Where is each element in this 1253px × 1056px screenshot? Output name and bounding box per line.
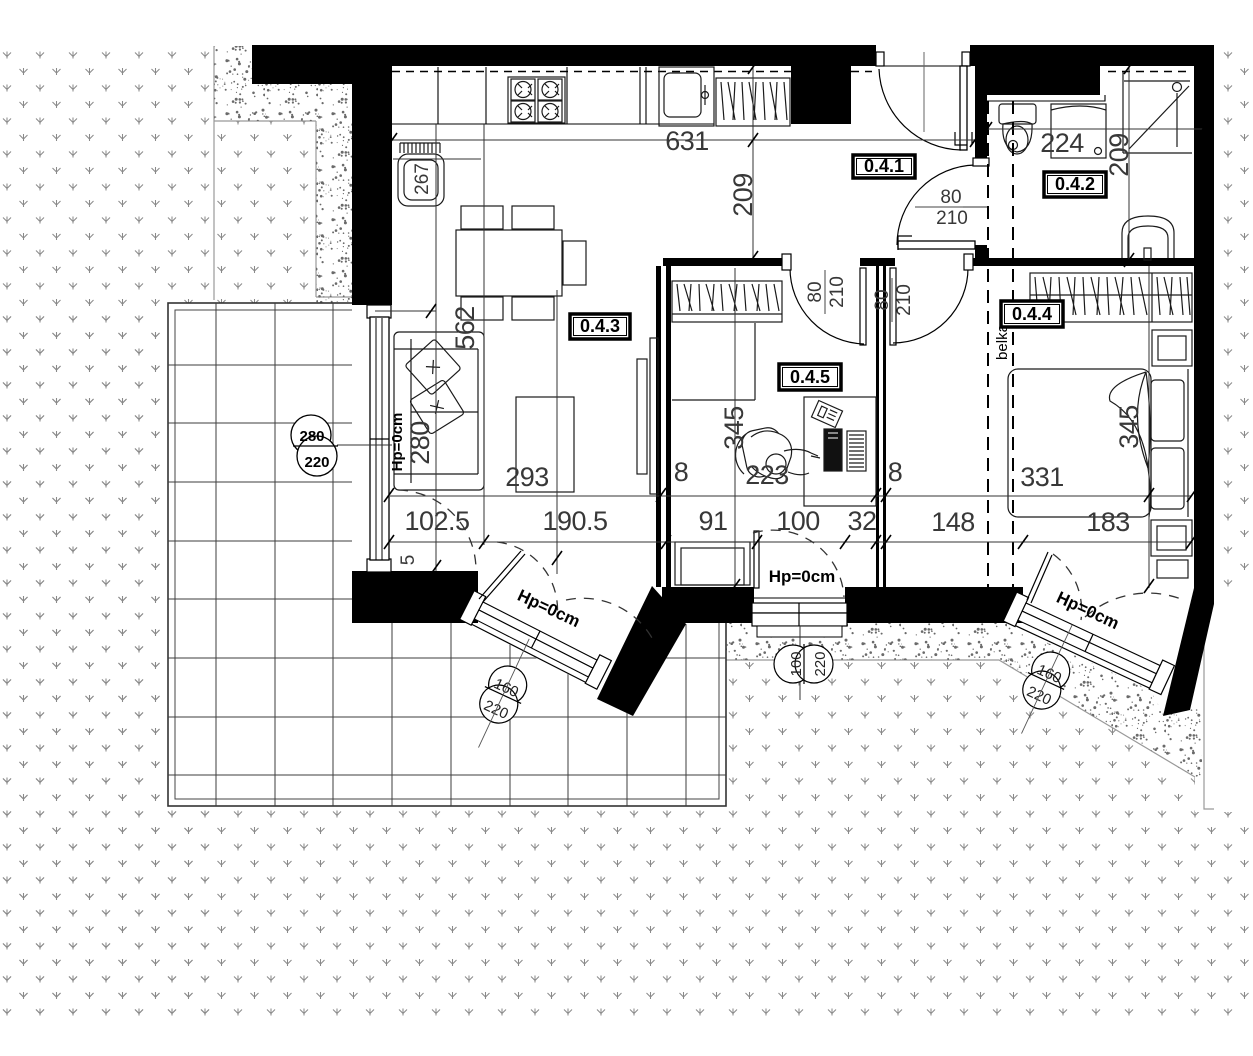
- svg-text:0.4.2: 0.4.2: [1055, 174, 1095, 194]
- svg-text:345: 345: [719, 406, 749, 450]
- svg-text:belka: belka: [994, 323, 1011, 360]
- svg-text:0.4.5: 0.4.5: [790, 367, 830, 387]
- svg-text:210: 210: [936, 208, 968, 229]
- svg-text:267: 267: [412, 163, 433, 195]
- svg-text:183: 183: [1086, 507, 1130, 537]
- svg-text:210: 210: [894, 284, 915, 316]
- svg-text:209: 209: [728, 173, 758, 217]
- svg-text:0.4.4: 0.4.4: [1012, 304, 1052, 324]
- svg-text:220: 220: [304, 454, 329, 471]
- svg-text:100: 100: [788, 651, 805, 676]
- svg-text:190.5: 190.5: [542, 506, 607, 536]
- svg-text:224: 224: [1040, 128, 1084, 158]
- svg-text:5: 5: [398, 555, 419, 566]
- svg-text:562: 562: [450, 306, 480, 350]
- svg-text:345: 345: [1114, 405, 1144, 449]
- svg-text:8: 8: [674, 457, 689, 487]
- svg-text:220: 220: [812, 651, 829, 676]
- svg-text:Hp=0cm: Hp=0cm: [389, 413, 406, 472]
- svg-text:210: 210: [827, 276, 848, 308]
- svg-text:100: 100: [776, 506, 820, 536]
- svg-text:280: 280: [405, 421, 435, 465]
- svg-text:280: 280: [299, 428, 324, 445]
- svg-text:223: 223: [745, 460, 789, 490]
- svg-text:91: 91: [698, 506, 727, 536]
- svg-text:148: 148: [931, 507, 975, 537]
- svg-text:Hp=0cm: Hp=0cm: [769, 567, 836, 586]
- svg-text:331: 331: [1020, 462, 1064, 492]
- svg-text:631: 631: [665, 126, 709, 156]
- svg-text:293: 293: [505, 462, 549, 492]
- svg-text:209: 209: [1104, 133, 1134, 177]
- svg-text:102.5: 102.5: [404, 506, 469, 536]
- svg-text:8: 8: [888, 457, 903, 487]
- svg-text:80: 80: [940, 187, 961, 208]
- svg-text:80: 80: [805, 281, 826, 302]
- svg-text:32: 32: [847, 506, 876, 536]
- svg-text:0.4.3: 0.4.3: [580, 316, 620, 336]
- svg-text:80: 80: [872, 289, 893, 310]
- svg-text:0.4.1: 0.4.1: [864, 156, 904, 176]
